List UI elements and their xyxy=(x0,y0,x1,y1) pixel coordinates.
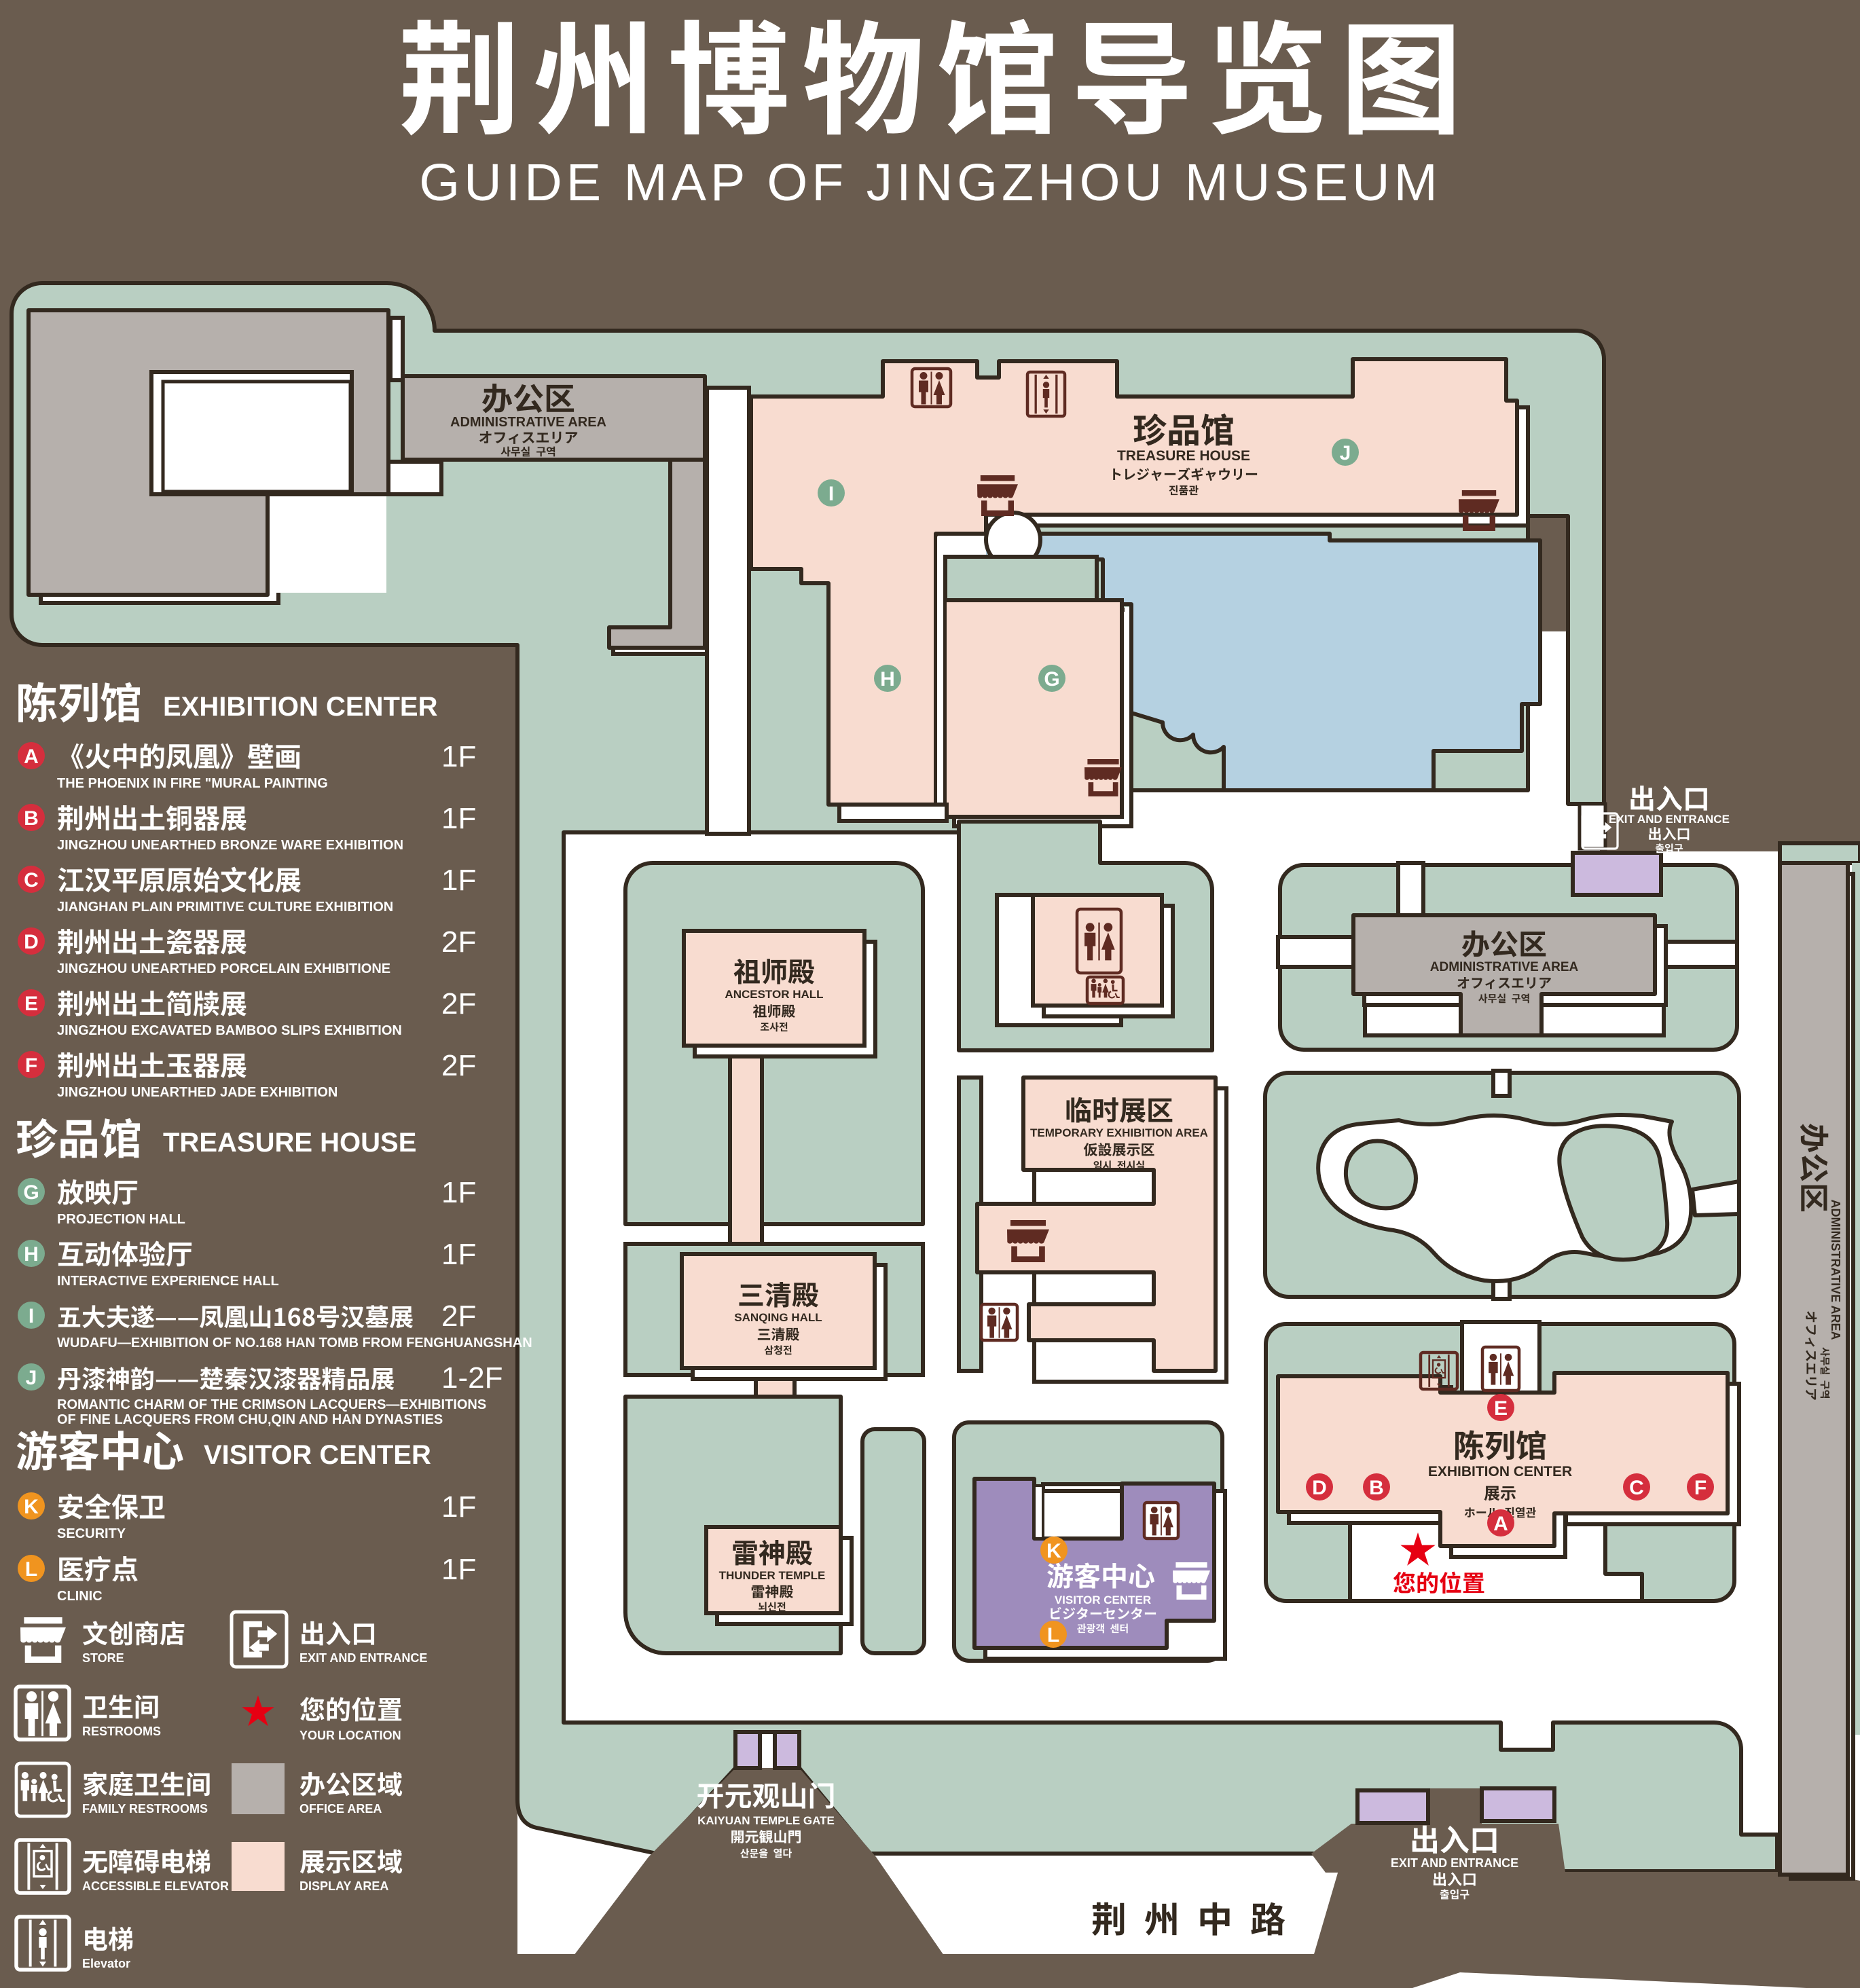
svg-text:G: G xyxy=(23,1181,39,1204)
svg-text:ACCESSIBLE ELEVATOR: ACCESSIBLE ELEVATOR xyxy=(82,1879,229,1893)
svg-text:EXIT AND ENTRANCE: EXIT AND ENTRANCE xyxy=(1609,813,1730,826)
svg-text:L: L xyxy=(25,1558,37,1581)
svg-text:EXIT AND ENTRANCE: EXIT AND ENTRANCE xyxy=(1391,1856,1518,1870)
svg-text:TEMPORARY EXHIBITION AREA: TEMPORARY EXHIBITION AREA xyxy=(1030,1126,1208,1139)
svg-text:2F: 2F xyxy=(441,987,476,1020)
svg-text:STORE: STORE xyxy=(82,1651,124,1665)
svg-text:RESTROOMS: RESTROOMS xyxy=(82,1725,161,1738)
svg-text:K: K xyxy=(1046,1540,1061,1562)
svg-text:B: B xyxy=(24,807,39,830)
svg-text:YOUR LOCATION: YOUR LOCATION xyxy=(299,1729,401,1742)
svg-text:1F: 1F xyxy=(441,1238,476,1271)
svg-text:C: C xyxy=(24,869,39,891)
svg-text:ADMINISTRATIVE AREA: ADMINISTRATIVE AREA xyxy=(1829,1200,1842,1340)
svg-text:1-2F: 1-2F xyxy=(441,1361,503,1395)
svg-text:C: C xyxy=(1629,1477,1644,1499)
svg-text:I: I xyxy=(29,1305,34,1327)
svg-text:E: E xyxy=(1494,1397,1508,1420)
svg-text:SANQING HALL: SANQING HALL xyxy=(734,1311,822,1324)
svg-text:2F: 2F xyxy=(441,1049,476,1082)
svg-text:1F: 1F xyxy=(441,1553,476,1586)
svg-text:OFFICE AREA: OFFICE AREA xyxy=(299,1802,382,1816)
svg-text:1F: 1F xyxy=(441,740,476,773)
svg-text:JIANGHAN PLAIN PRIMITIVE CULTU: JIANGHAN PLAIN PRIMITIVE CULTURE EXHIBIT… xyxy=(57,900,393,915)
svg-text:JINGZHOU EXCAVATED BAMBOO SLIP: JINGZHOU EXCAVATED BAMBOO SLIPS EXHIBITI… xyxy=(57,1023,402,1038)
svg-text:FAMILY RESTROOMS: FAMILY RESTROOMS xyxy=(82,1802,208,1816)
svg-text:OF FINE LACQUERS FROM CHU,QIN: OF FINE LACQUERS FROM CHU,QIN AND HAN DY… xyxy=(57,1412,443,1427)
svg-text:DISPLAY AREA: DISPLAY AREA xyxy=(299,1879,388,1893)
svg-text:A: A xyxy=(1493,1513,1508,1535)
svg-text:THUNDER TEMPLE: THUNDER TEMPLE xyxy=(719,1569,826,1582)
svg-text:VISITOR CENTER: VISITOR CENTER xyxy=(1055,1594,1151,1606)
svg-text:1F: 1F xyxy=(441,1490,476,1524)
svg-text:PROJECTION HALL: PROJECTION HALL xyxy=(57,1212,185,1227)
svg-text:1F: 1F xyxy=(441,802,476,835)
svg-text:JINGZHOU UNEARTHED JADE EXHIBI: JINGZHOU UNEARTHED JADE EXHIBITION xyxy=(57,1085,338,1100)
svg-text:H: H xyxy=(880,668,895,691)
svg-text:GUIDE MAP OF JINGZHOU MUSEUM: GUIDE MAP OF JINGZHOU MUSEUM xyxy=(419,153,1442,212)
svg-text:2F: 2F xyxy=(441,1300,476,1333)
svg-text:D: D xyxy=(1312,1477,1327,1499)
svg-text:ANCESTOR HALL: ANCESTOR HALL xyxy=(725,988,823,1001)
svg-text:H: H xyxy=(24,1243,39,1266)
svg-text:WUDAFU—EXHIBITION OF NO.168 HA: WUDAFU—EXHIBITION OF NO.168 HAN TOMB FRO… xyxy=(57,1336,532,1350)
svg-text:INTERACTIVE EXPERIENCE HALL: INTERACTIVE EXPERIENCE HALL xyxy=(57,1274,279,1289)
svg-text:1F: 1F xyxy=(441,1176,476,1209)
svg-text:G: G xyxy=(1044,668,1059,691)
svg-text:EXIT AND ENTRANCE: EXIT AND ENTRANCE xyxy=(299,1651,427,1665)
svg-text:2F: 2F xyxy=(441,925,476,959)
svg-text:JINGZHOU UNEARTHED BRONZE WARE: JINGZHOU UNEARTHED BRONZE WARE EXHIBITIO… xyxy=(57,838,403,853)
svg-text:K: K xyxy=(24,1496,39,1518)
svg-text:JINGZHOU UNEARTHED PORCELAIN E: JINGZHOU UNEARTHED PORCELAIN EXHIBITIONE xyxy=(57,961,390,976)
svg-text:F: F xyxy=(25,1054,37,1077)
svg-text:ADMINISTRATIVE AREA: ADMINISTRATIVE AREA xyxy=(1430,960,1579,974)
svg-text:I: I xyxy=(828,483,834,505)
svg-text:E: E xyxy=(24,993,38,1015)
svg-text:ROMANTIC CHARM OF THE CRIMSON: ROMANTIC CHARM OF THE CRIMSON LACQUERS—E… xyxy=(57,1397,486,1412)
svg-text:F: F xyxy=(1694,1477,1707,1499)
svg-text:Elevator: Elevator xyxy=(82,1957,130,1970)
svg-text:1F: 1F xyxy=(441,864,476,897)
svg-text:J: J xyxy=(1340,442,1351,464)
svg-text:L: L xyxy=(1047,1624,1059,1646)
svg-text:A: A xyxy=(24,745,39,768)
svg-text:SECURITY: SECURITY xyxy=(57,1526,126,1541)
svg-text:TREASURE HOUSE: TREASURE HOUSE xyxy=(163,1128,416,1158)
svg-text:EXHIBITION CENTER: EXHIBITION CENTER xyxy=(163,692,438,722)
svg-text:CLINIC: CLINIC xyxy=(57,1589,103,1604)
svg-text:TREASURE HOUSE: TREASURE HOUSE xyxy=(1117,448,1250,464)
svg-text:VISITOR CENTER: VISITOR CENTER xyxy=(204,1440,431,1470)
svg-text:B: B xyxy=(1369,1477,1384,1499)
svg-text:EXHIBITION CENTER: EXHIBITION CENTER xyxy=(1428,1464,1572,1479)
svg-text:D: D xyxy=(24,931,39,953)
svg-text:ADMINISTRATIVE AREA: ADMINISTRATIVE AREA xyxy=(450,415,606,430)
svg-text:J: J xyxy=(26,1367,37,1389)
svg-text:KAIYUAN TEMPLE GATE: KAIYUAN TEMPLE GATE xyxy=(697,1814,835,1827)
svg-text:THE PHOENIX IN FIRE "MURAL PAI: THE PHOENIX IN FIRE "MURAL PAINTING xyxy=(57,776,328,791)
